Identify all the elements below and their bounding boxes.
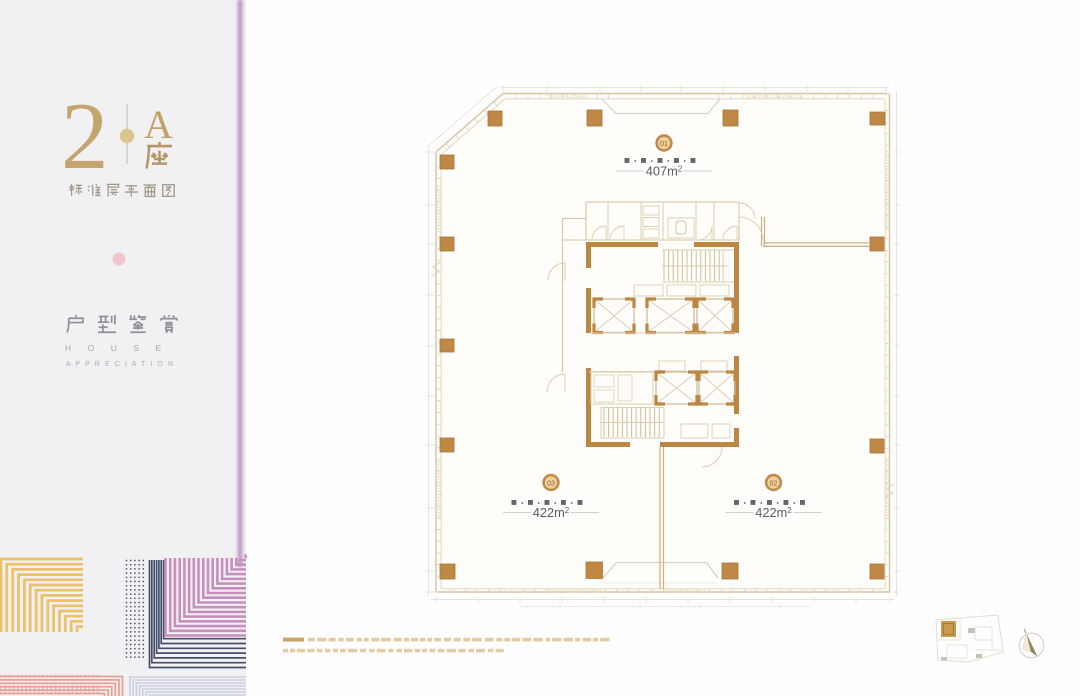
svg-text:422m2: 422m2	[755, 505, 792, 520]
svg-text:2: 2	[61, 83, 109, 189]
svg-text:01: 01	[660, 141, 668, 148]
svg-text:03: 03	[547, 480, 555, 487]
svg-text:A P P R E C I A T I O N: A P P R E C I A T I O N	[66, 361, 175, 368]
svg-text:422m2: 422m2	[533, 505, 570, 520]
svg-text:02: 02	[770, 480, 778, 487]
svg-text:407m2: 407m2	[646, 164, 683, 179]
svg-text:A: A	[144, 102, 173, 147]
svg-text:HOUSE: HOUSE	[65, 343, 178, 353]
